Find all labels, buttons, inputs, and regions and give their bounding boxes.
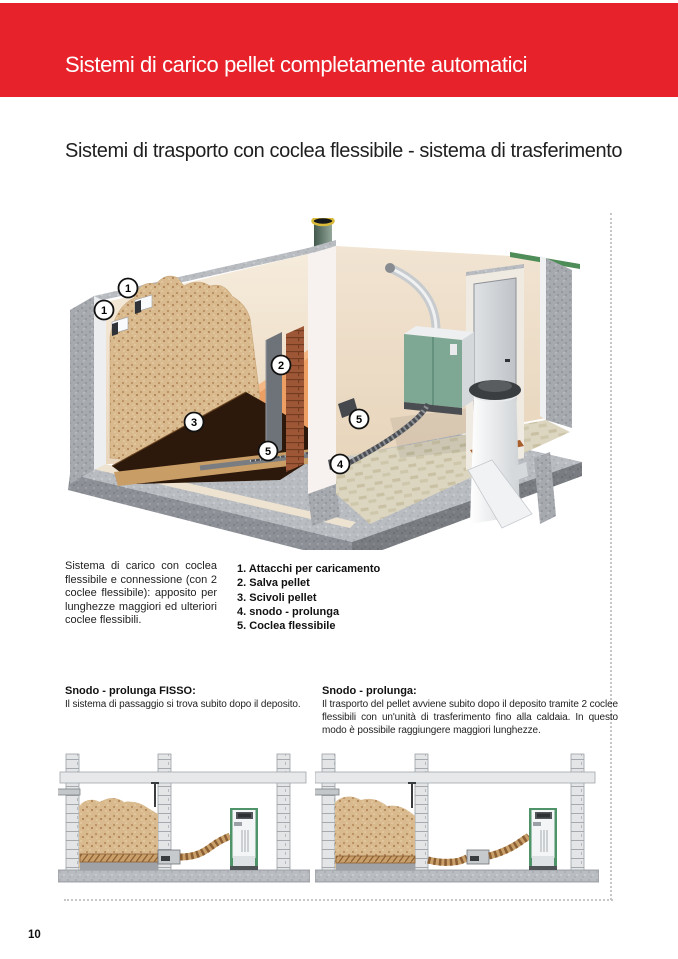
dotted-guide-vertical <box>610 213 612 900</box>
svg-text:3: 3 <box>191 417 197 429</box>
badge-1a: 1 <box>119 279 138 298</box>
legend-item: 4. snodo - prolunga <box>237 605 380 619</box>
badge-5a: 5 <box>259 442 278 461</box>
page-number: 10 <box>28 929 41 941</box>
auger-channel <box>80 854 158 862</box>
svg-text:4: 4 <box>337 459 344 471</box>
section-heading-fisso: Snodo - prolunga FISSO: <box>65 685 196 697</box>
section-body-prolunga: Il trasporto del pellet avviene subito d… <box>322 698 618 737</box>
legend-item: 2. Salva pellet <box>237 576 380 590</box>
floor-plinth <box>336 863 415 870</box>
boiler <box>404 326 474 415</box>
inlet-pipe <box>315 789 339 795</box>
page-title: Sistemi di carico pellet completamente a… <box>65 52 527 78</box>
ceiling-beam <box>315 772 595 783</box>
legend-item: 1. Attacchi per caricamento <box>237 562 380 576</box>
legend-item: 5. Coclea flessibile <box>237 619 380 633</box>
column <box>571 754 584 870</box>
partition-wall <box>308 240 340 526</box>
salva-pellet-panel <box>266 332 282 458</box>
diagram-snodo-prolunga <box>315 750 599 888</box>
badge-4: 4 <box>331 455 350 474</box>
pellet-boiler <box>230 808 258 870</box>
svg-text:5: 5 <box>265 446 271 458</box>
badge-3: 3 <box>185 413 204 432</box>
diagram-snodo-fisso <box>58 750 310 888</box>
ground <box>58 870 310 882</box>
description-paragraph: Sistema di carico con coclea flessibile … <box>65 560 217 628</box>
column <box>322 754 335 870</box>
cutaway-room-scene: 1 1 2 3 5 4 5 <box>40 218 610 550</box>
badge-2: 2 <box>272 356 291 375</box>
ground <box>315 870 599 882</box>
badge-5b: 5 <box>350 410 369 429</box>
dotted-guide-horizontal <box>64 899 613 901</box>
header-band: Sistemi di carico pellet completamente a… <box>0 3 678 97</box>
column <box>415 754 428 870</box>
svg-text:5: 5 <box>356 414 362 426</box>
ceiling-beam <box>60 772 306 783</box>
pellet-boiler <box>529 808 557 870</box>
column <box>66 754 79 870</box>
brick-pillar <box>286 326 304 472</box>
main-illustration: 1 1 2 3 5 4 5 <box>40 218 610 550</box>
section-heading-prolunga: Snodo - prolunga: <box>322 685 417 697</box>
svg-text:2: 2 <box>278 360 284 372</box>
svg-text:1: 1 <box>125 283 131 295</box>
legend-list: 1. Attacchi per caricamento 2. Salva pel… <box>237 562 380 633</box>
svg-text:1: 1 <box>101 305 107 317</box>
floor-plinth <box>80 862 158 870</box>
door-handle <box>505 359 510 362</box>
document-page: Sistemi di carico pellet completamente a… <box>0 0 678 959</box>
section-body-fisso: Il sistema di passaggio si trova subito … <box>65 698 325 711</box>
column <box>277 754 290 870</box>
subtitle: Sistemi di trasporto con coclea flessibi… <box>65 140 622 163</box>
legend-item: 3. Scivoli pellet <box>237 591 380 605</box>
badge-1b: 1 <box>95 301 114 320</box>
auger-channel <box>336 856 415 863</box>
inlet-pipe <box>58 789 80 795</box>
